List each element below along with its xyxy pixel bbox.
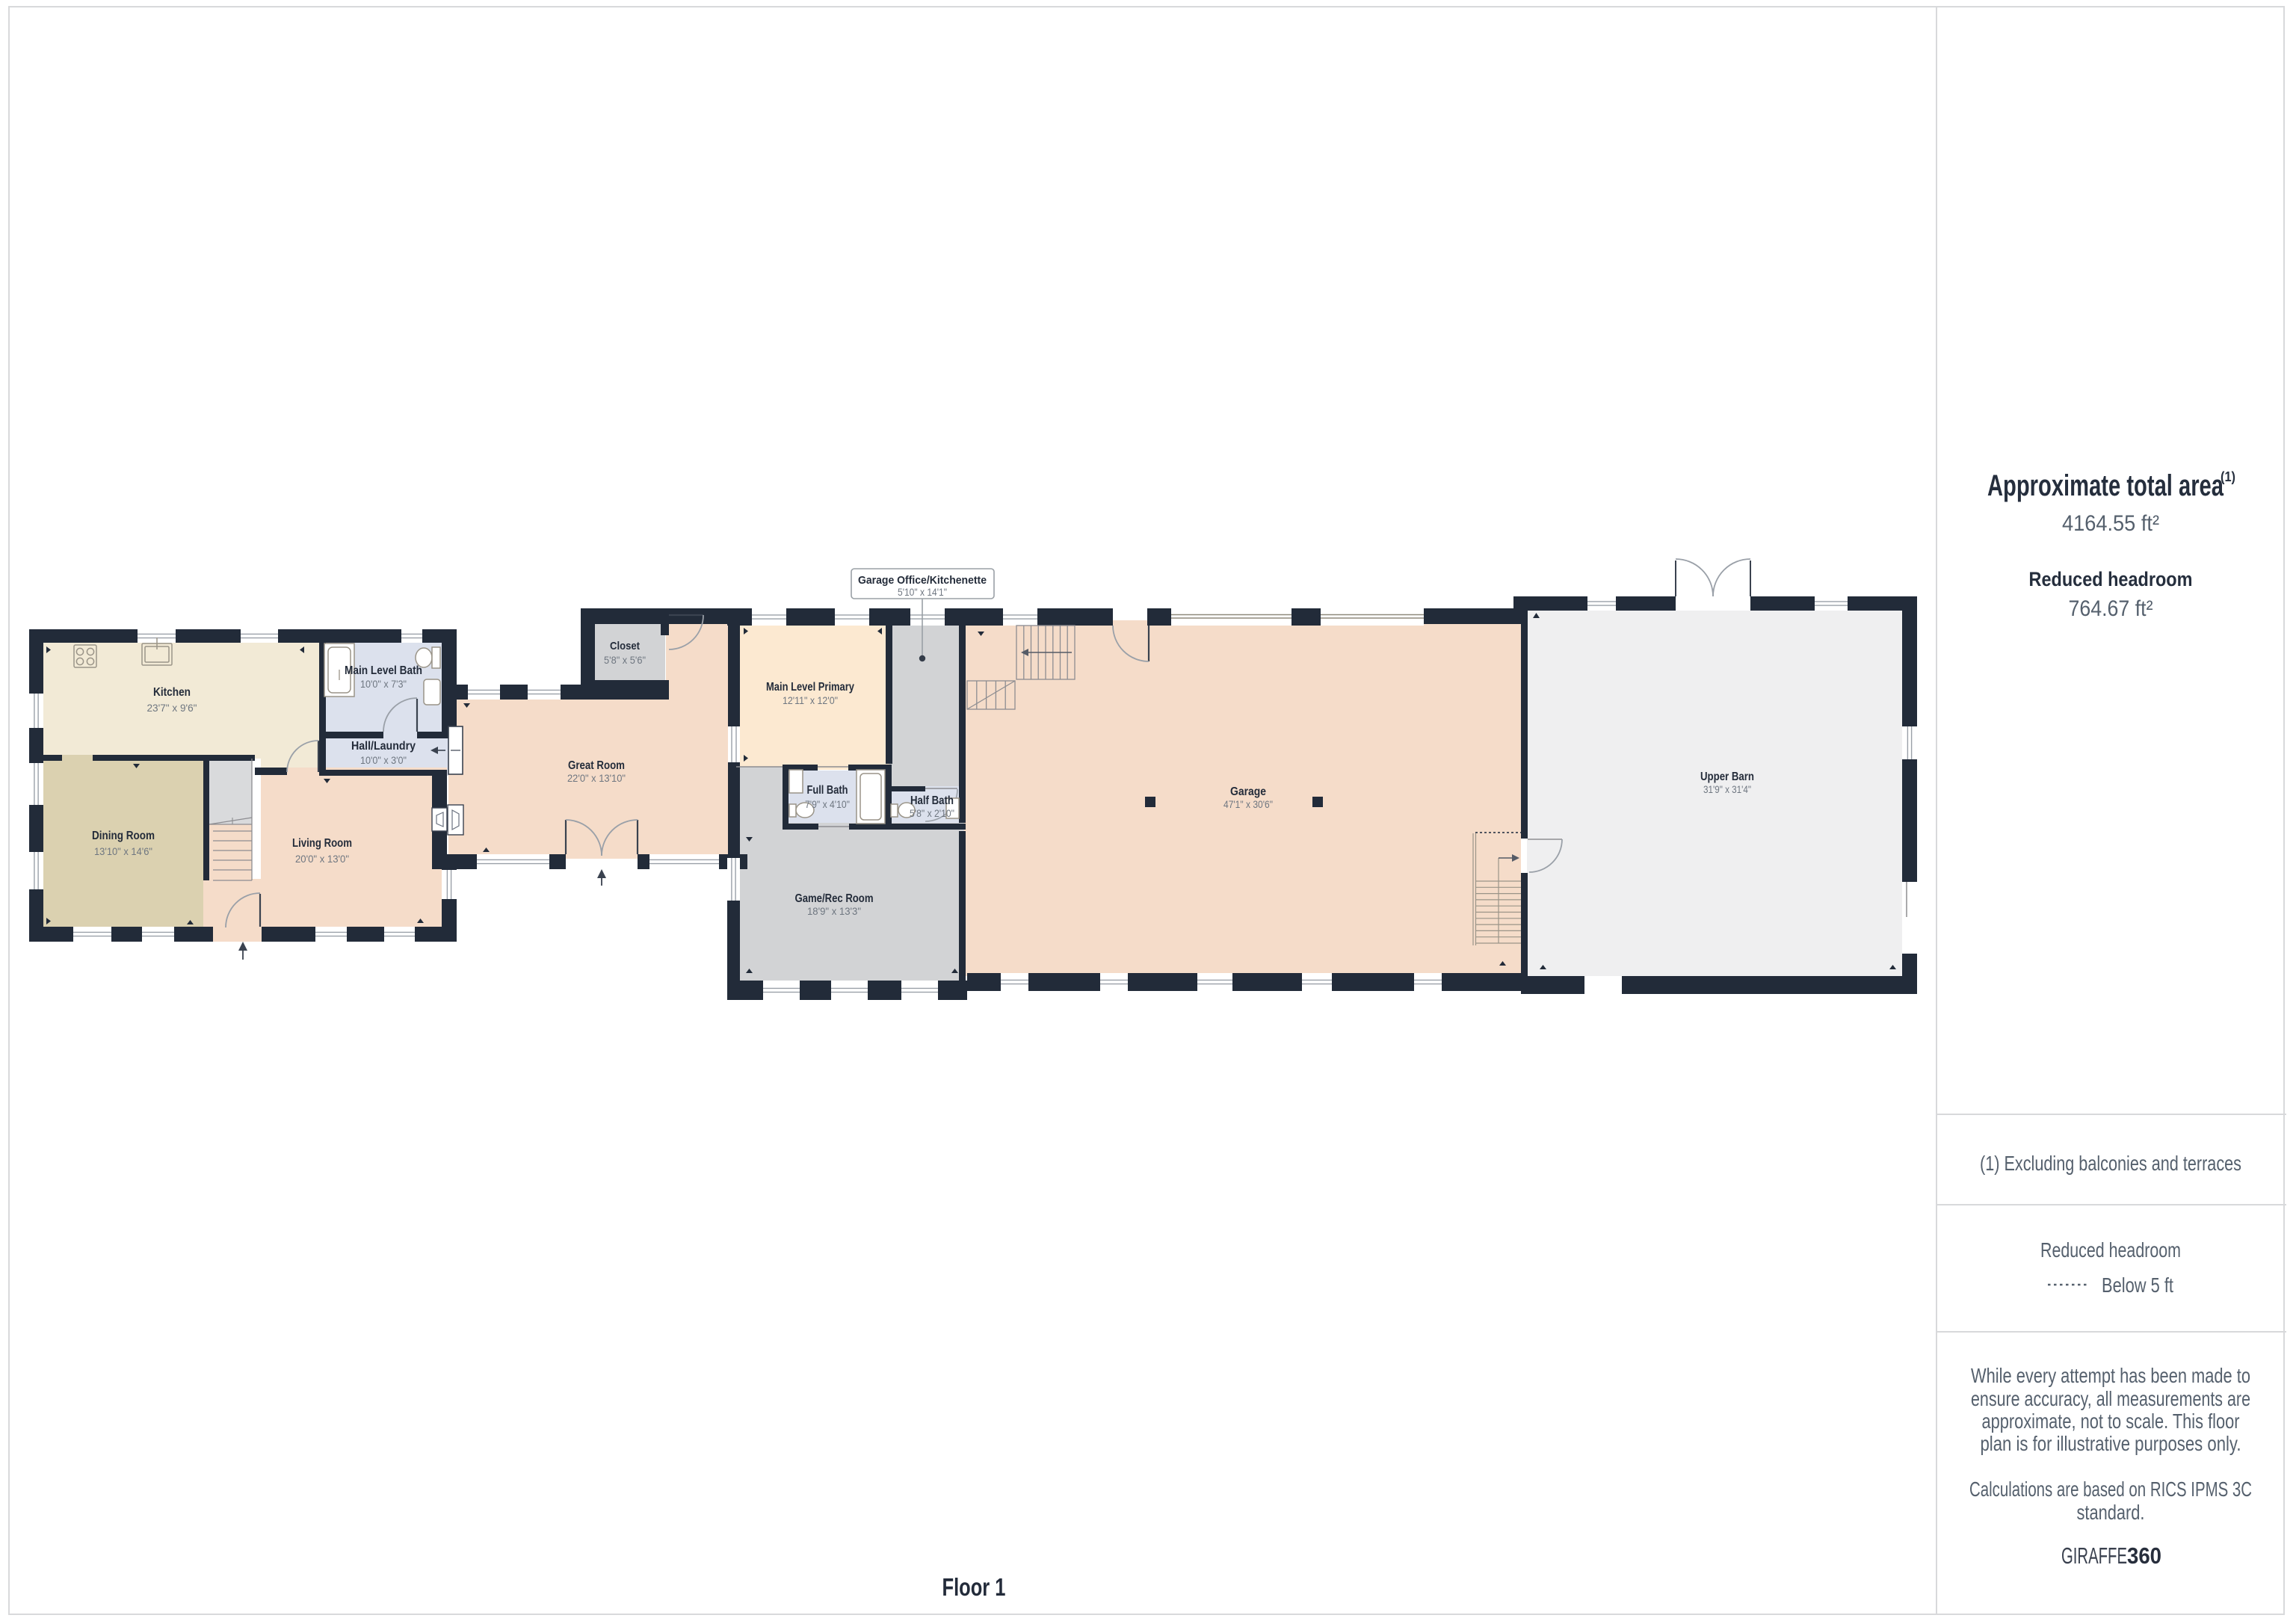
svg-text:12'11" x 12'0": 12'11" x 12'0"	[783, 694, 838, 706]
svg-text:Main Level Bath: Main Level Bath	[345, 664, 422, 677]
svg-text:Floor 1: Floor 1	[942, 1573, 1006, 1601]
svg-text:31'9" x 31'4": 31'9" x 31'4"	[1703, 783, 1751, 795]
svg-text:5'8" x 5'6": 5'8" x 5'6"	[604, 654, 646, 666]
svg-text:4164.55 ft²: 4164.55 ft²	[2062, 511, 2159, 536]
svg-text:Garage Office/Kitchenette: Garage Office/Kitchenette	[858, 574, 987, 587]
svg-text:13'10" x 14'6": 13'10" x 14'6"	[94, 845, 152, 857]
svg-text:18'9" x 13'3": 18'9" x 13'3"	[807, 905, 861, 917]
svg-text:(1): (1)	[2221, 469, 2235, 484]
svg-text:7'9" x 4'10": 7'9" x 4'10"	[805, 798, 850, 810]
svg-text:standard.: standard.	[2077, 1501, 2145, 1524]
svg-text:plan is for illustrative purpo: plan is for illustrative purposes only.	[1981, 1432, 2241, 1455]
svg-text:Calculations are based on RICS: Calculations are based on RICS IPMS 3C	[1969, 1478, 2252, 1501]
svg-text:47'1" x 30'6": 47'1" x 30'6"	[1223, 798, 1273, 810]
svg-text:Reduced headroom: Reduced headroom	[2029, 568, 2193, 590]
svg-text:Half Bath: Half Bath	[910, 794, 954, 807]
svg-text:Great Room: Great Room	[568, 759, 625, 772]
svg-text:20'0" x 13'0": 20'0" x 13'0"	[295, 853, 349, 865]
svg-text:360: 360	[2127, 1543, 2161, 1569]
svg-text:Hall/Laundry: Hall/Laundry	[351, 740, 416, 753]
svg-text:Garage: Garage	[1230, 785, 1266, 798]
svg-text:approximate, not to scale. Thi: approximate, not to scale. This floor	[1982, 1410, 2240, 1433]
svg-text:Closet: Closet	[610, 640, 640, 652]
svg-text:764.67 ft²: 764.67 ft²	[2069, 596, 2153, 621]
svg-text:Full Bath: Full Bath	[807, 784, 848, 797]
svg-text:Game/Rec Room: Game/Rec Room	[795, 892, 874, 905]
svg-text:While every attempt has been m: While every attempt has been made to	[1971, 1364, 2250, 1387]
svg-text:ensure accuracy, all measureme: ensure accuracy, all measurements are	[1971, 1387, 2250, 1410]
svg-text:22'0" x 13'10": 22'0" x 13'10"	[567, 772, 626, 784]
svg-text:5'10" x 14'1": 5'10" x 14'1"	[898, 587, 947, 598]
svg-text:Reduced headroom: Reduced headroom	[2040, 1238, 2181, 1262]
svg-text:Upper Barn: Upper Barn	[1700, 771, 1754, 783]
svg-text:Approximate total area: Approximate total area	[1987, 469, 2224, 502]
svg-text:5'8" x 2'10": 5'8" x 2'10"	[910, 807, 954, 819]
svg-text:Below 5 ft: Below 5 ft	[2102, 1273, 2173, 1297]
svg-text:GIRAFFE: GIRAFFE	[2061, 1543, 2127, 1569]
svg-text:10'0" x 7'3": 10'0" x 7'3"	[360, 678, 407, 690]
svg-text:Living Room: Living Room	[292, 837, 352, 850]
svg-text:(1) Excluding balconies and te: (1) Excluding balconies and terraces	[1980, 1152, 2241, 1175]
svg-text:Main Level Primary: Main Level Primary	[766, 681, 854, 694]
svg-text:10'0" x 3'0": 10'0" x 3'0"	[360, 754, 407, 766]
svg-text:Kitchen: Kitchen	[153, 686, 191, 699]
svg-text:Dining Room: Dining Room	[92, 830, 155, 842]
svg-text:23'7" x 9'6": 23'7" x 9'6"	[147, 702, 197, 714]
